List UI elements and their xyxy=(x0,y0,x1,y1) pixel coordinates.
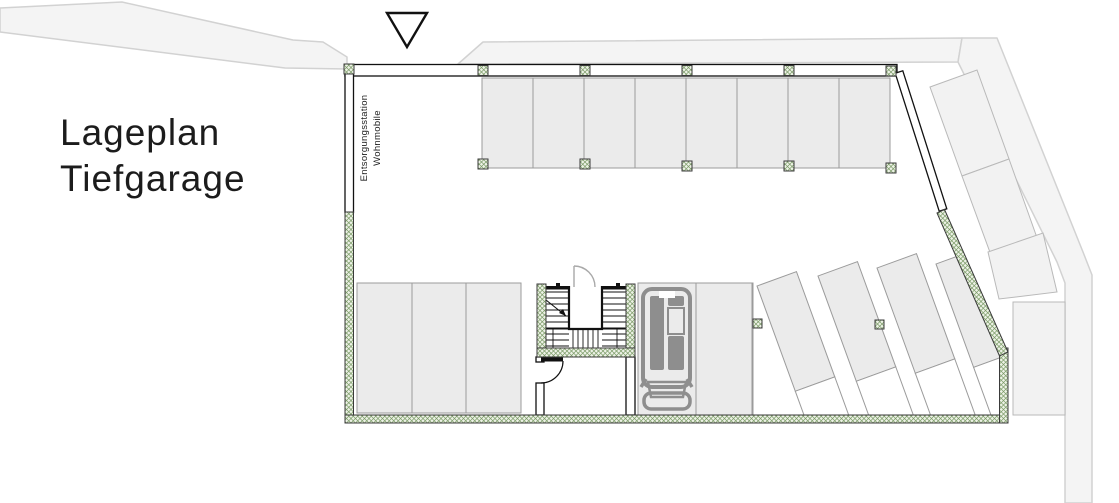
door-jamb xyxy=(541,358,563,362)
column xyxy=(580,159,590,169)
column xyxy=(580,66,590,76)
room-wall xyxy=(536,383,544,415)
stairwell-wall-left xyxy=(537,284,546,357)
wall-left-lower xyxy=(345,212,354,423)
column xyxy=(875,320,884,329)
column xyxy=(753,319,762,328)
column xyxy=(682,161,692,171)
site-plan-drawing xyxy=(0,0,1119,503)
disposal-station-label: Entsorgungsstation Wohnmobile xyxy=(358,54,386,222)
wall-bottom xyxy=(345,415,1008,423)
page-title: Lageplan Tiefgarage xyxy=(60,110,246,202)
stair-start-dot xyxy=(616,283,620,287)
column xyxy=(682,66,692,76)
column xyxy=(344,64,354,74)
stairwell-wall-bottom xyxy=(537,348,635,357)
wall-right xyxy=(1000,348,1009,423)
column xyxy=(886,66,896,76)
column xyxy=(478,66,488,76)
parking-row-bottom-left xyxy=(357,283,521,413)
site-plan-canvas: Lageplan Tiefgarage Entsorgungsstation W… xyxy=(0,0,1119,503)
outside-parking-space xyxy=(1013,302,1065,415)
parking-row-top xyxy=(482,78,890,168)
wall-left-upper xyxy=(345,65,354,213)
column xyxy=(784,161,794,171)
stair-top-wall xyxy=(601,286,626,290)
column xyxy=(886,163,896,173)
page-title-line1: Lageplan xyxy=(60,110,246,156)
column xyxy=(478,159,488,169)
road-band-left xyxy=(0,2,347,69)
wall-top xyxy=(345,65,897,77)
room-wall xyxy=(626,357,635,415)
column xyxy=(784,66,794,76)
page-title-line2: Tiefgarage xyxy=(60,156,246,202)
stairwell-wall-right xyxy=(626,284,635,357)
stair-start-dot xyxy=(556,283,560,287)
road-band-top xyxy=(458,38,962,64)
parking-area xyxy=(357,283,521,413)
entrance-marker-icon xyxy=(387,13,427,47)
